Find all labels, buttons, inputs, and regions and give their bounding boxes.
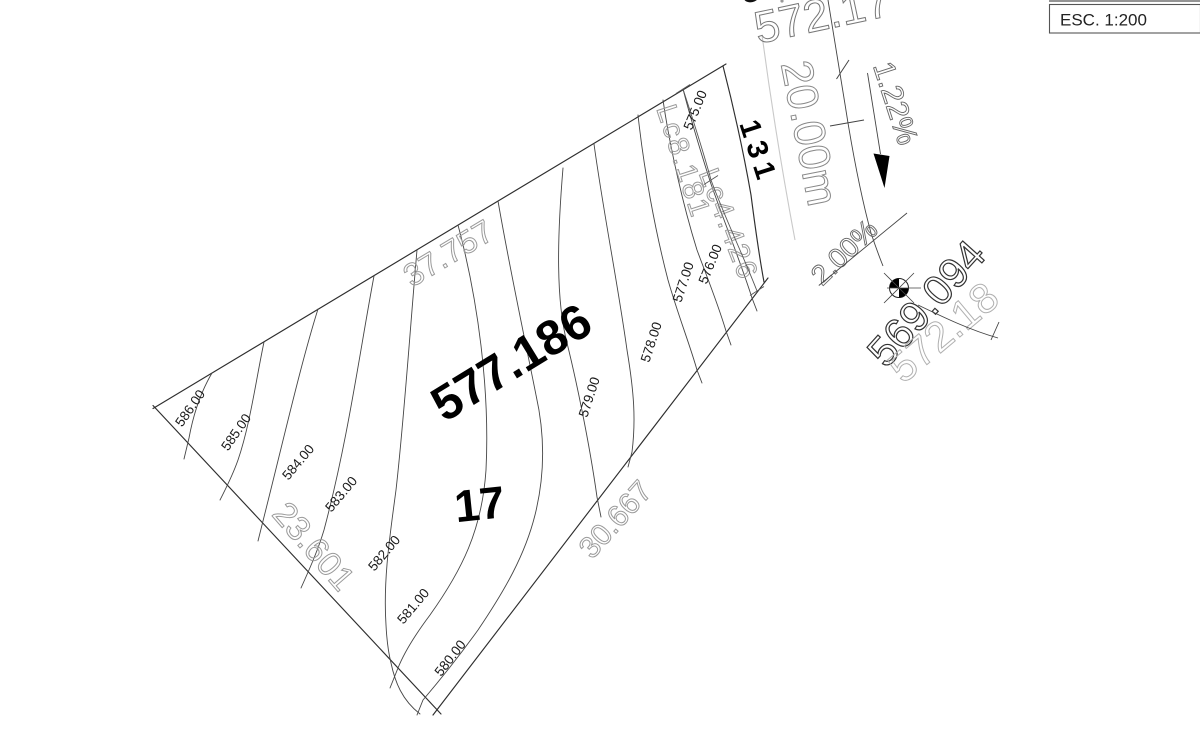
svg-text:17: 17	[452, 476, 507, 532]
svg-text:ESC. 1:200: ESC. 1:200	[1060, 11, 1147, 30]
